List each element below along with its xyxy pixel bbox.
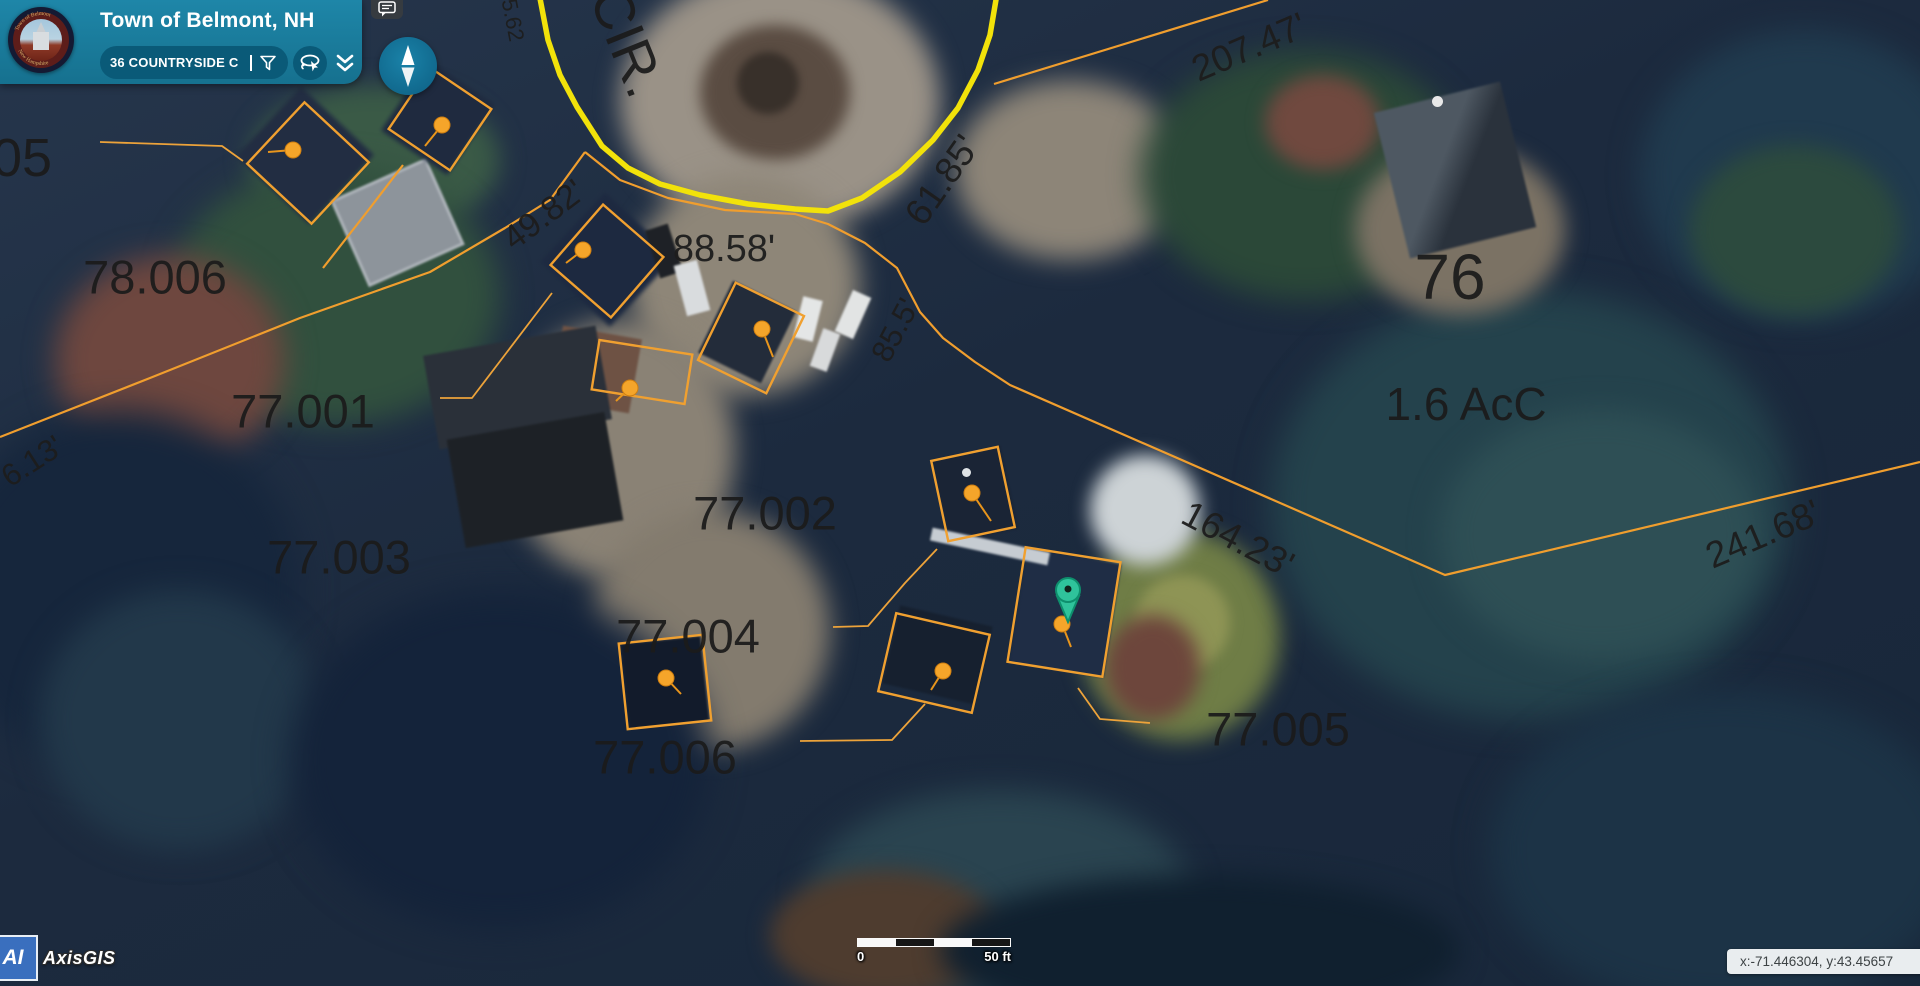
search-box[interactable] xyxy=(100,46,288,79)
callout-leader xyxy=(800,704,925,741)
parcel-label: 78.006 xyxy=(83,251,227,304)
collapse-header-button[interactable] xyxy=(334,54,356,74)
dimension-label: 88.58' xyxy=(673,228,775,270)
building-marker-dot[interactable] xyxy=(622,380,638,396)
parcel-label: 76 xyxy=(1414,241,1485,313)
parcel-label: 77.005 xyxy=(1206,703,1350,756)
lasso-pointer-icon xyxy=(298,51,322,75)
building-marker-dot[interactable] xyxy=(935,663,951,679)
building-marker-dot[interactable] xyxy=(964,485,980,501)
text-cursor xyxy=(250,55,252,71)
scale-min-label: 0 xyxy=(857,949,864,964)
callout-leader xyxy=(833,549,937,627)
scale-bar-segments xyxy=(857,938,1011,947)
building-marker-dot[interactable] xyxy=(285,142,301,158)
filter-icon[interactable] xyxy=(258,53,278,73)
selected-location-pin[interactable] xyxy=(1056,578,1080,622)
building-marker-box[interactable] xyxy=(878,613,990,713)
gis-overlay: CIR. 05 78.006 77.001 77.002 77.003 77.0… xyxy=(0,0,1920,986)
scale-max-label: 50 ft xyxy=(984,949,1011,964)
callout-leader xyxy=(100,142,243,161)
parcel-label: 77.004 xyxy=(616,610,760,663)
speech-bubble-icon xyxy=(378,1,396,17)
comments-button[interactable] xyxy=(371,0,403,19)
parcel-label: 77.001 xyxy=(231,385,375,438)
road-name-label: CIR. xyxy=(578,0,678,106)
dimension-label: 61.85' xyxy=(897,127,988,232)
axisgis-watermark: AI AxisGIS xyxy=(0,935,116,981)
building-marker-dot[interactable] xyxy=(575,242,591,258)
parcel-label: 05 xyxy=(0,128,52,188)
building-marker-dot[interactable] xyxy=(754,321,770,337)
seal-text-top: Town of Belmont xyxy=(14,11,52,32)
cursor-coordinates: x:-71.446304, y:43.45657 xyxy=(1727,949,1920,974)
compass-button[interactable] xyxy=(379,37,437,95)
dimension-label: 241.68' xyxy=(1700,492,1827,577)
dimension-label: 6.13' xyxy=(0,428,69,493)
map-application: CIR. 05 78.006 77.001 77.002 77.003 77.0… xyxy=(0,0,1920,986)
parcel-boundary-line xyxy=(323,165,403,268)
building-marker-dot[interactable] xyxy=(658,670,674,686)
building-marker-box[interactable] xyxy=(247,102,369,223)
app-header-panel: Town of Belmont New Hampshire Town of Be… xyxy=(0,0,362,84)
dimension-label: 164.23' xyxy=(1175,493,1300,586)
building-marker-box[interactable] xyxy=(698,283,804,394)
dimension-label: 5.62 xyxy=(497,0,530,43)
scale-bar: 0 50 ft xyxy=(857,938,1011,964)
search-input[interactable] xyxy=(110,55,248,70)
parcel-label: 77.002 xyxy=(693,487,837,540)
callout-leader xyxy=(1078,688,1150,723)
north-arrow-icon xyxy=(393,42,423,90)
svg-text:New Hampshire: New Hampshire xyxy=(17,49,50,67)
svg-text:Town of Belmont: Town of Belmont xyxy=(14,11,52,32)
cai-logo: AI xyxy=(0,935,38,981)
dimension-label: 207.47' xyxy=(1186,5,1313,90)
parcel-label: 77.006 xyxy=(593,731,737,784)
lasso-select-button[interactable] xyxy=(293,46,327,80)
area-label: 1.6 AcC xyxy=(1385,378,1546,430)
building-marker-dot[interactable] xyxy=(434,117,450,133)
app-title: Town of Belmont, NH xyxy=(100,9,315,33)
axisgis-brand: AxisGIS xyxy=(43,948,116,969)
parcel-label: 77.003 xyxy=(267,531,411,584)
building-marker-box[interactable] xyxy=(592,340,693,404)
town-seal-logo: Town of Belmont New Hampshire xyxy=(8,7,74,73)
seal-text-bottom: New Hampshire xyxy=(17,49,50,67)
callout-leader xyxy=(440,293,552,398)
